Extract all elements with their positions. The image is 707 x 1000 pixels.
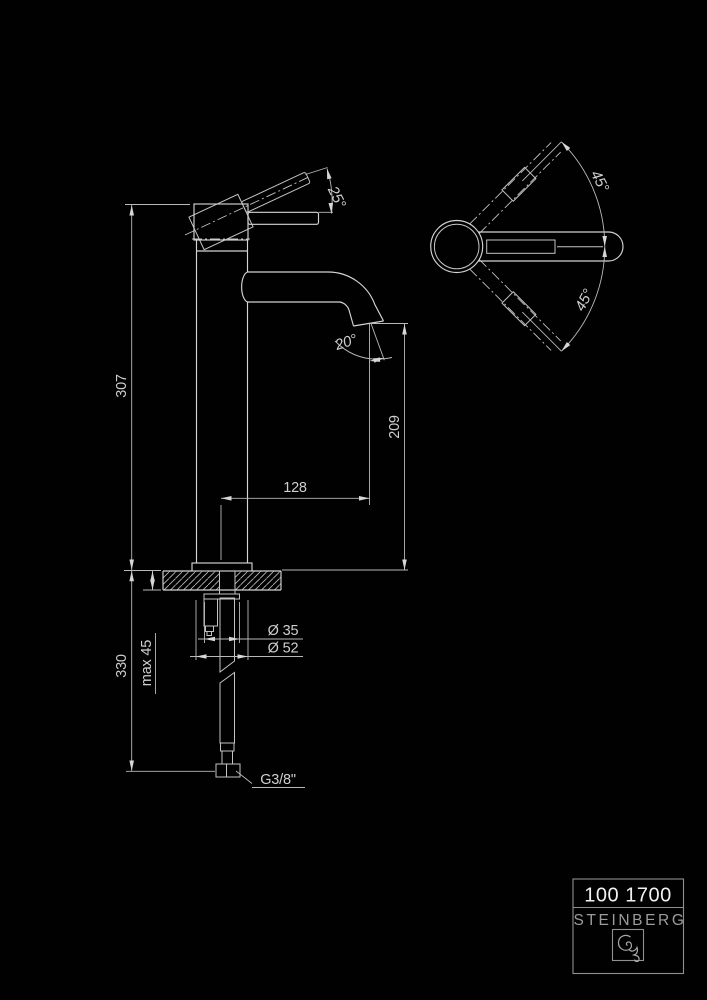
lever-handle: [248, 212, 319, 224]
hose-thread-label: G3/8": [260, 772, 296, 788]
connection-nut: [216, 764, 240, 777]
dim-below-deck-label: 330: [114, 654, 130, 678]
dim-spout-reach-label: 128: [283, 480, 307, 496]
dim-heights: 307 330: [114, 205, 215, 772]
steinberg-logo-icon: [613, 930, 644, 962]
model-number: 100 1700: [584, 885, 671, 907]
body-top-outline: [431, 221, 483, 273]
faucet-head: [194, 204, 319, 251]
top-view: 45° 45°: [431, 140, 623, 353]
lever-handle-raised: [185, 164, 317, 249]
dim-deck-thickness: max 45: [139, 571, 161, 694]
dim-spout-reach: 128: [221, 480, 370, 560]
faucet-body: [197, 240, 248, 563]
spout: [242, 272, 384, 326]
dim-diameters: Ø 35 Ø 52: [190, 600, 303, 660]
dim-dia35-label: Ø 35: [268, 623, 299, 639]
dim-swivel-upper-label: 45°: [587, 167, 612, 195]
supply-hose: [216, 598, 240, 777]
brand-name: STEINBERG: [574, 912, 687, 929]
dimension-drawing-svg: 25° 20° 128 209: [0, 0, 707, 1000]
dim-total-height-label: 307: [114, 374, 130, 398]
dim-outlet-height: 209: [282, 324, 408, 571]
callout-hose-thread: G3/8": [236, 771, 305, 788]
dim-swivel-lower-label: 45°: [572, 286, 597, 314]
dim-outlet-angle-label: 20°: [332, 331, 359, 354]
dim-deck-thickness-label: max 45: [139, 640, 155, 686]
base-flange: [192, 563, 252, 571]
dim-lever-angle: 25°: [306, 168, 350, 214]
title-block: 100 1700 STEINBERG: [573, 879, 686, 974]
mounting-deck: [163, 563, 281, 590]
drawing-canvas: 25° 20° 128 209: [0, 0, 707, 1000]
dim-outlet-height-label: 209: [387, 415, 403, 439]
fixing-stud: [204, 599, 218, 626]
dim-dia52-label: Ø 52: [268, 641, 299, 657]
dim-outlet-angle: 20°: [332, 324, 392, 506]
hose-ferrule: [221, 743, 235, 751]
lever-plan: [479, 232, 624, 261]
dim-lever-angle-label: 25°: [324, 183, 349, 211]
side-view: 25° 20° 128 209: [114, 164, 408, 788]
